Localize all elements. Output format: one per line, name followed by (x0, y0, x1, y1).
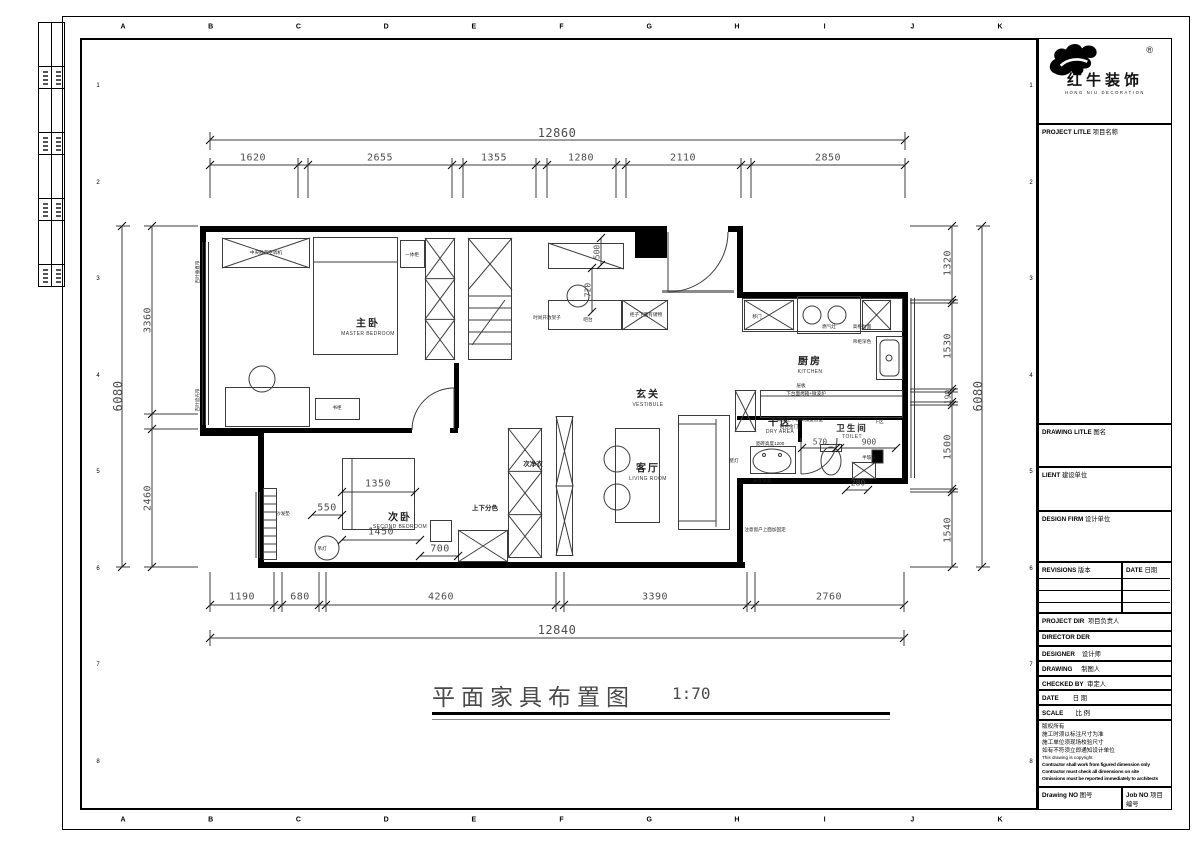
bed-master (313, 237, 398, 355)
grid-letter-bottom: J (910, 817, 914, 824)
director-label: DIRECTOR DER (1042, 634, 1090, 641)
dim-bot-2: 680 (290, 592, 310, 603)
dim-bot-total: 12840 (538, 623, 577, 637)
note-sofa-pad: 沙发垫 (276, 511, 290, 517)
job-no-label: Job NO (1126, 792, 1148, 799)
grid-number-right: 8 (1029, 759, 1032, 765)
dim-bot-1: 1190 (229, 592, 255, 603)
dim-bot-3: 4260 (428, 592, 454, 603)
date-label-cn: 日 期 (1073, 695, 1087, 702)
room-label-toilet-en: TOILET (842, 434, 862, 440)
vanity-counter (750, 446, 796, 474)
wall-segment (200, 428, 412, 433)
grid-letter-bottom: B (208, 817, 213, 824)
crossed-cabinet (735, 390, 756, 432)
note-second-closet: 次净衣 (523, 458, 543, 468)
wall-segment (454, 363, 459, 428)
revisions-row-line (1039, 590, 1170, 591)
entry-door-sill (662, 290, 734, 293)
dim-left-total: 6080 (111, 381, 125, 412)
dim-right-5: 1540 (943, 517, 954, 543)
note-black-door-2: 铝合金门 (780, 424, 798, 430)
revisions-row-line (1039, 602, 1170, 603)
grid-number-left: 7 (96, 662, 99, 668)
crossed-cabinet (508, 428, 542, 558)
drawing-person-label-cn: 制图人 (1081, 666, 1100, 673)
grid-letter-top: F (559, 24, 563, 31)
client-panel: LIENT 建设单位 (1038, 467, 1172, 511)
dim-bot-4: 3390 (642, 592, 668, 603)
room-label-living-en: LIVING ROOM (629, 476, 667, 482)
grid-letter-top: J (910, 24, 914, 31)
dim-toilet-900: 900 (862, 438, 876, 447)
grid-letter-bottom: C (296, 817, 301, 824)
drawing-title-panel: DRAWING LITLE 图名 (1038, 424, 1172, 467)
note-shelf-board: 层板 (796, 383, 805, 389)
grid-letter-bottom: E (471, 817, 476, 824)
grid-letter-top: G (646, 24, 651, 31)
numbers-panel: Drawing NO 图号 Job NO 项目编号 (1038, 787, 1172, 810)
note-blind-curtain-2: 百叶遮光帘 (195, 389, 201, 412)
note-open-shelf: 时尚开放架子 (533, 315, 561, 321)
note-gas-stove: 燃气灶 (822, 324, 836, 330)
grid-letter-bottom: I (824, 817, 826, 824)
room-label-second: 次卧 (388, 509, 412, 524)
note-tile-height: 瓷砖高度1200 (756, 441, 785, 447)
grid-letter-top: C (296, 24, 301, 31)
copyright-line: Contractor shall work from figured dimen… (1042, 762, 1168, 769)
drawing-title-label-cn: 图名 (1093, 429, 1106, 436)
note-under-cabinet-storage: 柜子下面有储物 (630, 312, 662, 318)
dim-right-total: 6080 (971, 381, 985, 412)
dim-left-1: 3360 (143, 307, 154, 333)
dim-right-2: 1530 (943, 333, 954, 359)
copyright-line: This drawing is copyright (1042, 755, 1168, 762)
note-window-fix: 注意窗户上面加固定 (744, 527, 785, 533)
project-title-label: PROJECT LITLE (1042, 129, 1091, 136)
date-panel: DATE 日 期 (1038, 690, 1172, 705)
revisions-label-cn: 版本 (1078, 567, 1091, 574)
note-tall-cabinet: 高柜台面 (853, 324, 871, 330)
scale-label-cn: 比 例 (1076, 710, 1090, 717)
dim-cab-700: 700 (430, 544, 450, 555)
grid-number-right: 5 (1029, 469, 1032, 475)
note-pendant-lamp: 吊灯 (317, 546, 326, 552)
client-label-cn: 建设单位 (1062, 472, 1087, 479)
dim-right-3: 190 (944, 390, 953, 404)
dim-bed2-1450: 1450 (368, 527, 394, 538)
grid-letter-top: K (997, 24, 1002, 31)
floor-plan-sheet: 主卧 MASTER BEDROOM 玄关 VESTIBULE 厨房 KITCHE… (0, 0, 1200, 844)
logo-name-cn: 红牛装饰 (1067, 69, 1143, 90)
grid-number-right: 2 (1029, 180, 1032, 186)
rev-date-label-cn: 日期 (1144, 567, 1157, 574)
dim-top-4: 1280 (568, 153, 594, 164)
dim-bed2-1350: 1350 (365, 479, 391, 490)
logo-panel: ® 红牛装饰 HONG NIU DECORATION (1038, 38, 1172, 124)
dim-toilet-570: 570 (813, 438, 827, 447)
grid-number-right: 7 (1029, 662, 1032, 668)
revisions-row-line (1039, 578, 1170, 579)
kitchen-sink (876, 336, 903, 380)
project-dir-label: PROJECT DIR (1042, 618, 1084, 625)
drawing-person-panel: DRAWING 制图人 (1038, 661, 1172, 676)
copyright-line: 施工时须以标注尺寸为准 (1042, 731, 1168, 739)
dim-top-2: 2655 (367, 153, 393, 164)
drawing-scale: 1:70 (672, 684, 711, 703)
note-blind-curtain-1: 百叶垂直帘 (195, 261, 201, 284)
dim-top-1: 1620 (240, 153, 266, 164)
dim-left-2: 2460 (143, 485, 154, 511)
note-mirror: 异性镜面 (753, 478, 771, 484)
grid-letter-bottom: F (559, 817, 563, 824)
note-two-tone: 上下分色 (472, 502, 498, 512)
drawing-no-label: Drawing NO (1042, 792, 1078, 799)
dim-alcove-720: 720 (584, 283, 593, 297)
director-panel: DIRECTOR DER (1038, 631, 1172, 646)
designer-label-cn: 设计师 (1082, 651, 1101, 658)
sofa (678, 415, 730, 530)
grid-number-left: 3 (96, 276, 99, 282)
grid-number-left: 8 (96, 759, 99, 765)
grid-number-left: 1 (96, 83, 99, 89)
grid-letter-top: H (734, 24, 739, 31)
crossed-cabinet (556, 416, 573, 556)
grid-number-left: 6 (96, 566, 99, 572)
revisions-label: REVISIONS (1042, 567, 1076, 574)
room-label-kitchen: 厨房 (798, 353, 822, 368)
grid-number-right: 1 (1029, 83, 1032, 89)
note-allinone-cabinet: 一体柜 (405, 252, 419, 258)
grid-letter-bottom: H (734, 817, 739, 824)
wall-segment (635, 226, 667, 258)
wall-segment (737, 226, 743, 298)
design-firm-panel: DESIGN FIRM 设计单位 (1038, 511, 1172, 562)
note-wall-lamp: 壁灯 (729, 458, 738, 464)
grid-letter-bottom: A (120, 817, 125, 824)
copyright-panel: 版权所有 施工时须以标注尺寸为准 施工单位须现场校验尺寸 如有不符须立即通知设计… (1038, 720, 1172, 787)
dim-right-1: 1320 (943, 250, 954, 276)
scale-panel: SCALE 比 例 (1038, 705, 1172, 720)
grid-letter-bottom: D (384, 817, 389, 824)
room-label-toilet: 卫生间 (836, 422, 868, 434)
crossed-cabinet (458, 530, 508, 562)
checked-by-label-cn: 审定人 (1087, 681, 1106, 688)
date-label: DATE (1042, 695, 1059, 702)
grid-number-right: 6 (1029, 566, 1032, 572)
copyright-line: 如有不符须立即通知设计单位 (1042, 747, 1168, 755)
grid-number-left: 4 (96, 373, 99, 379)
dim-bed2-550: 550 (317, 503, 337, 514)
plan-area (0, 0, 1200, 844)
room-label-living: 客厅 (636, 460, 660, 475)
grid-letter-top: I (824, 24, 826, 31)
project-dir-label-cn: 项目负责人 (1088, 618, 1119, 625)
dim-toilet-280: 280 (851, 479, 865, 488)
project-dir-panel: PROJECT DIR 项目负责人 (1038, 613, 1172, 631)
note-half-glass: 半玻璃 (862, 455, 876, 461)
scale-label: SCALE (1042, 710, 1063, 717)
design-firm-label-cn: 设计单位 (1085, 516, 1110, 523)
grid-letter-top: E (471, 24, 476, 31)
grid-number-right: 3 (1029, 276, 1032, 282)
grid-letter-top: B (208, 24, 213, 31)
dim-right-4: 1500 (943, 434, 954, 460)
radiator (263, 488, 277, 560)
title-underline-thin (432, 719, 890, 720)
note-under-counter-oven: 下台面烤箱+微波炉 (786, 391, 825, 397)
project-title-label-cn: 项目名称 (1093, 129, 1118, 136)
grid-letter-top: D (384, 24, 389, 31)
crossed-cabinet (425, 238, 455, 360)
designer-label: DESIGNER (1042, 651, 1075, 658)
room-label-vestibule: 玄关 (636, 386, 660, 401)
drawing-no-label-cn: 图号 (1080, 792, 1093, 799)
copyright-line: 施工单位须现场校验尺寸 (1042, 739, 1168, 747)
design-firm-label: DESIGN FIRM (1042, 516, 1083, 523)
crossed-cabinet (852, 462, 876, 479)
desk (225, 387, 310, 427)
grid-letter-bottom: G (646, 817, 651, 824)
room-label-vestibule-en: VESTIBULE (632, 402, 663, 408)
registered-mark: ® (1146, 45, 1153, 55)
small-cabinet (430, 520, 452, 542)
wall-segment (737, 478, 743, 568)
wall-segment (200, 226, 545, 232)
dim-top-3: 1355 (481, 153, 507, 164)
room-label-kitchen-en: KITCHEN (798, 369, 823, 375)
note-sliding-door: 移门 (752, 314, 761, 320)
dim-top-total: 12860 (538, 126, 577, 140)
alcove-shelf (548, 243, 624, 269)
designer-panel: DESIGNER 设计师 (1038, 646, 1172, 661)
dim-top-5: 2110 (670, 153, 696, 164)
dim-top-6: 2850 (815, 153, 841, 164)
copyright-line: 版权所有 (1042, 723, 1168, 731)
dim-alcove-500: 500 (593, 245, 602, 259)
wall-segment (450, 428, 458, 433)
checked-by-label: CHECKED BY (1042, 681, 1084, 688)
stair-storage (468, 238, 512, 360)
room-label-master-en: MASTER BEDROOM (341, 331, 395, 337)
checked-by-panel: CHECKED BY 审定人 (1038, 676, 1172, 690)
wall-segment (258, 562, 745, 568)
dim-bot-5: 2760 (816, 592, 842, 603)
project-title-panel: PROJECT LITLE 项目名称 (1038, 124, 1172, 424)
grid-letter-bottom: K (997, 817, 1002, 824)
wall-segment (545, 226, 637, 232)
note-dark-cabinet: 吊柜深色 (853, 339, 871, 345)
room-label-master: 主卧 (356, 315, 380, 330)
logo-name-en: HONG NIU DECORATION (1065, 90, 1145, 95)
grid-number-left: 5 (96, 469, 99, 475)
grid-letter-top: A (120, 24, 125, 31)
drawing-title: 平面家具布置图 (432, 678, 635, 712)
copyright-line: Omissions must be reported immediately t… (1042, 776, 1168, 783)
note-ac-cabinet: 中央静音空调机 (250, 250, 282, 256)
drawing-person-label: DRAWING (1042, 666, 1072, 673)
grid-number-right: 4 (1029, 373, 1032, 379)
note-lower-zone: 下区 (874, 419, 883, 425)
copyright-line: Contractor must check all dimensions on … (1042, 769, 1168, 776)
grid-number-left: 2 (96, 180, 99, 186)
drawing-title-label: DRAWING LITLE (1042, 429, 1092, 436)
title-underline-thick (432, 712, 890, 715)
note-bookcase: 书柜 (332, 405, 341, 411)
client-label: LIENT (1042, 472, 1060, 479)
rev-date-label: DATE (1126, 567, 1143, 574)
note-black-door-1: 黑色上半玻璃弧型造型 (777, 417, 823, 423)
revisions-panel: REVISIONS 版本 DATE 日期 (1038, 562, 1172, 613)
note-bar-counter: 吧台 (583, 317, 592, 323)
